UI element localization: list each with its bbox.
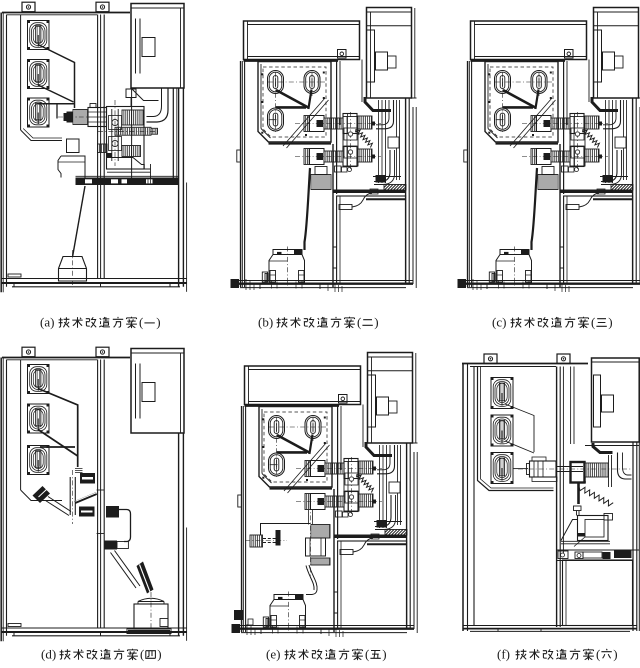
svg-text:(: ( [140,647,144,662]
svg-text:(e): (e) [266,647,280,662]
svg-text:(b): (b) [258,315,273,330]
svg-text:(: ( [365,647,369,662]
svg-text:(a): (a) [40,315,54,330]
svg-text:(d): (d) [41,647,56,662]
svg-text:(: ( [596,647,600,662]
svg-text:): ) [613,647,617,662]
svg-text:(: ( [357,315,361,330]
svg-text:): ) [156,315,160,330]
svg-text:): ) [382,647,386,662]
svg-text:(: ( [591,315,595,330]
svg-text:): ) [608,315,612,330]
svg-text:): ) [157,647,161,662]
svg-text:): ) [374,315,378,330]
svg-text:(c): (c) [492,315,506,330]
svg-text:(f): (f) [497,647,510,662]
svg-text:(: ( [139,315,143,330]
